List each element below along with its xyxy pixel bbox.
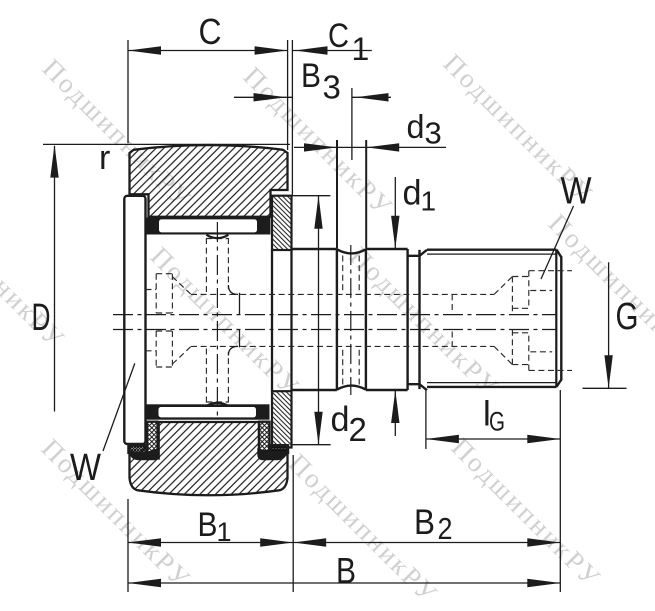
svg-text:W: W xyxy=(561,171,592,213)
svg-text:B: B xyxy=(301,57,321,95)
svg-text:1: 1 xyxy=(421,186,437,217)
svg-text:d: d xyxy=(403,174,422,213)
svg-text:3: 3 xyxy=(323,69,341,106)
svg-text:B: B xyxy=(414,503,435,542)
svg-text:2: 2 xyxy=(349,411,367,448)
svg-text:d: d xyxy=(407,108,425,145)
svg-text:B: B xyxy=(198,506,218,544)
svg-text:G: G xyxy=(489,407,505,437)
svg-text:1: 1 xyxy=(217,517,232,547)
svg-text:B: B xyxy=(336,550,356,591)
svg-text:r: r xyxy=(99,139,110,177)
svg-text:2: 2 xyxy=(438,511,453,546)
svg-text:d: d xyxy=(331,400,350,439)
svg-text:1: 1 xyxy=(352,31,370,67)
svg-text:C: C xyxy=(328,17,349,55)
svg-text:3: 3 xyxy=(425,116,442,151)
svg-text:W: W xyxy=(70,447,101,489)
svg-text:D: D xyxy=(32,297,51,339)
svg-text:C: C xyxy=(199,11,222,52)
svg-text:G: G xyxy=(616,296,639,338)
